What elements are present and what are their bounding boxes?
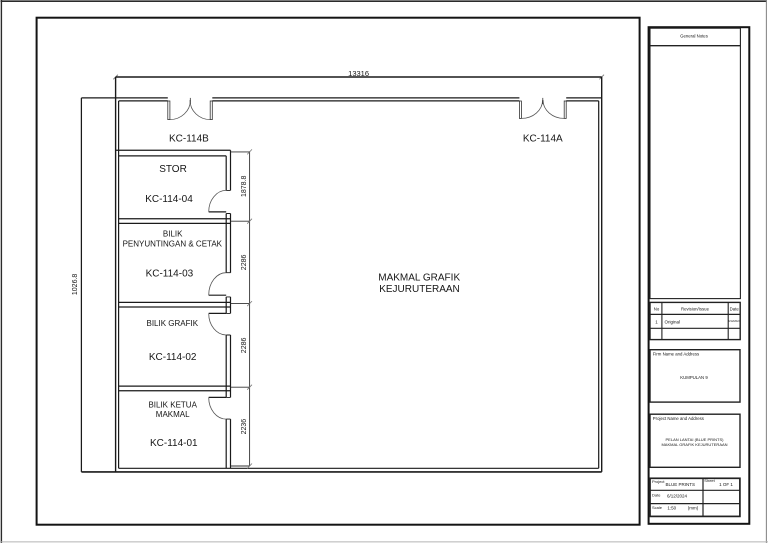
svg-text:Project: Project [652, 479, 665, 484]
svg-text:KC-114-01: KC-114-01 [150, 438, 198, 449]
svg-text:Date: Date [730, 307, 740, 312]
svg-text:(mm): (mm) [688, 506, 699, 511]
svg-text:KC-114-04: KC-114-04 [145, 194, 193, 205]
svg-text:MAKMAL GRAFIK: MAKMAL GRAFIK [378, 272, 460, 283]
svg-text:General Notes: General Notes [680, 33, 708, 38]
svg-text:1:50: 1:50 [667, 506, 676, 511]
svg-text:Scale: Scale [652, 505, 663, 510]
svg-text:BLUE PRINTS: BLUE PRINTS [666, 482, 696, 487]
svg-text:2286: 2286 [241, 255, 248, 271]
svg-text:Sheet: Sheet [704, 478, 715, 483]
svg-text:1 OF 1: 1 OF 1 [719, 482, 733, 487]
svg-text:BILIK GRAFIK: BILIK GRAFIK [147, 319, 199, 328]
svg-text:STOR: STOR [159, 164, 187, 175]
svg-text:KC-114-03: KC-114-03 [146, 268, 194, 279]
svg-text:BILIK: BILIK [163, 230, 183, 239]
svg-text:KC-114-02: KC-114-02 [149, 352, 197, 363]
svg-text:MAKMAL GRAFIK KEJURUTERAAN: MAKMAL GRAFIK KEJURUTERAAN [661, 442, 727, 447]
svg-text:6/12/2024: 6/12/2024 [728, 319, 740, 323]
svg-text:KC-114B: KC-114B [169, 134, 209, 145]
svg-text:Revision/Issue: Revision/Issue [681, 307, 710, 312]
svg-text:KEJURUTERAAN: KEJURUTERAAN [379, 284, 460, 295]
svg-text:Firm Name and Address: Firm Name and Address [653, 352, 699, 357]
svg-text:KC-114A: KC-114A [523, 134, 563, 145]
svg-text:2236: 2236 [241, 419, 248, 435]
svg-text:Date: Date [652, 492, 661, 497]
svg-text:6/12/2024: 6/12/2024 [667, 493, 688, 498]
svg-text:1878.8: 1878.8 [241, 175, 248, 197]
svg-text:2286: 2286 [241, 338, 248, 354]
svg-text:Original: Original [665, 319, 681, 324]
svg-text:PENYUNTINGAN & CETAK: PENYUNTINGAN & CETAK [123, 240, 223, 249]
svg-text:No: No [654, 307, 660, 312]
svg-text:KUMPULAN 9: KUMPULAN 9 [680, 375, 708, 380]
svg-text:Project Name and Address: Project Name and Address [653, 416, 704, 421]
svg-text:1026.8: 1026.8 [72, 274, 79, 296]
svg-text:BILIK KETUA: BILIK KETUA [148, 401, 197, 410]
svg-text:MAKMAL: MAKMAL [156, 410, 190, 419]
